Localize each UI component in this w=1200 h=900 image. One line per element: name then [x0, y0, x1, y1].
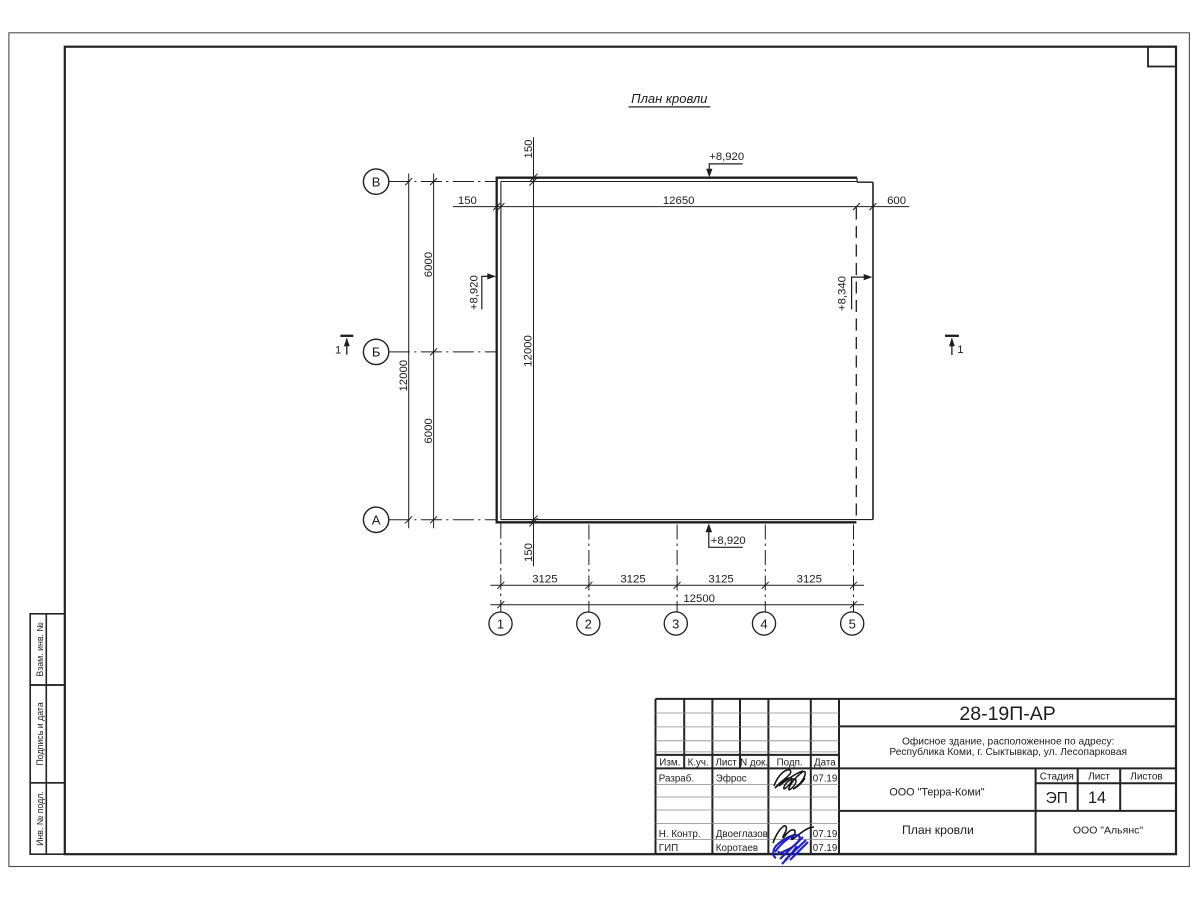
svg-text:ГИП: ГИП [659, 843, 678, 854]
svg-text:ООО "Терра-Коми": ООО "Терра-Коми" [889, 786, 984, 798]
svg-text:Б: Б [372, 345, 381, 360]
svg-text:3125: 3125 [532, 574, 557, 586]
svg-text:Листов: Листов [1130, 772, 1163, 783]
svg-text:1: 1 [957, 344, 963, 356]
svg-text:+8,920: +8,920 [711, 535, 746, 547]
svg-text:Н. Контр.: Н. Контр. [659, 829, 701, 840]
svg-text:28-19П-АР: 28-19П-АР [959, 703, 1055, 725]
svg-text:12000: 12000 [523, 335, 535, 367]
svg-text:План кровли: План кровли [631, 91, 707, 106]
svg-text:600: 600 [887, 195, 906, 207]
svg-text:Коротаев: Коротаев [716, 843, 758, 854]
svg-text:07.19: 07.19 [813, 843, 838, 854]
svg-text:12650: 12650 [663, 195, 695, 207]
svg-text:150: 150 [523, 139, 535, 158]
svg-text:Республика Коми, г. Сыктывкар,: Республика Коми, г. Сыктывкар, ул. Лесоп… [889, 746, 1127, 758]
svg-text:2: 2 [585, 616, 592, 631]
svg-text:Инв. № подл.: Инв. № подл. [35, 791, 45, 846]
svg-text:3125: 3125 [797, 574, 822, 586]
svg-text:6000: 6000 [423, 418, 435, 443]
svg-text:План кровли: План кровли [902, 823, 974, 837]
svg-text:Изм.: Изм. [659, 758, 680, 769]
svg-text:150: 150 [523, 543, 535, 562]
svg-text:В: В [372, 174, 381, 189]
svg-text:ООО "Альянс": ООО "Альянс" [1073, 825, 1143, 837]
svg-text:1: 1 [497, 616, 504, 631]
svg-text:150: 150 [458, 195, 477, 207]
svg-text:К.уч.: К.уч. [688, 758, 709, 769]
svg-text:6000: 6000 [423, 252, 435, 277]
svg-text:07.19: 07.19 [813, 829, 838, 840]
svg-text:+8,920: +8,920 [709, 151, 744, 163]
svg-text:5: 5 [849, 616, 856, 631]
svg-text:+8,340: +8,340 [836, 276, 848, 311]
svg-text:3: 3 [672, 616, 679, 631]
svg-text:1: 1 [335, 344, 341, 356]
svg-text:12500: 12500 [683, 593, 715, 605]
svg-text:Эфрос: Эфрос [716, 774, 747, 785]
svg-text:N док.: N док. [740, 758, 768, 769]
svg-text:Стадия: Стадия [1040, 772, 1074, 783]
svg-text:Подпись и дата: Подпись и дата [35, 702, 45, 765]
svg-text:Подп.: Подп. [777, 758, 803, 769]
svg-text:3125: 3125 [708, 574, 733, 586]
svg-text:А: А [372, 513, 381, 528]
svg-text:Дата: Дата [814, 758, 836, 769]
svg-text:Офисное здание, расположенное: Офисное здание, расположенное по адресу: [902, 736, 1114, 748]
svg-text:Разраб.: Разраб. [659, 774, 694, 785]
svg-text:+8,920: +8,920 [468, 275, 480, 310]
svg-text:3125: 3125 [620, 574, 645, 586]
svg-text:Двоеглазов: Двоеглазов [716, 829, 768, 840]
svg-text:4: 4 [760, 616, 767, 631]
svg-text:07.19: 07.19 [813, 774, 838, 785]
svg-text:12000: 12000 [398, 360, 410, 392]
svg-text:Лист: Лист [1088, 772, 1110, 783]
svg-text:Лист: Лист [715, 758, 737, 769]
svg-text:Взам. инв. №: Взам. инв. № [35, 622, 45, 677]
svg-text:ЭП: ЭП [1046, 790, 1068, 807]
svg-text:14: 14 [1088, 789, 1106, 807]
